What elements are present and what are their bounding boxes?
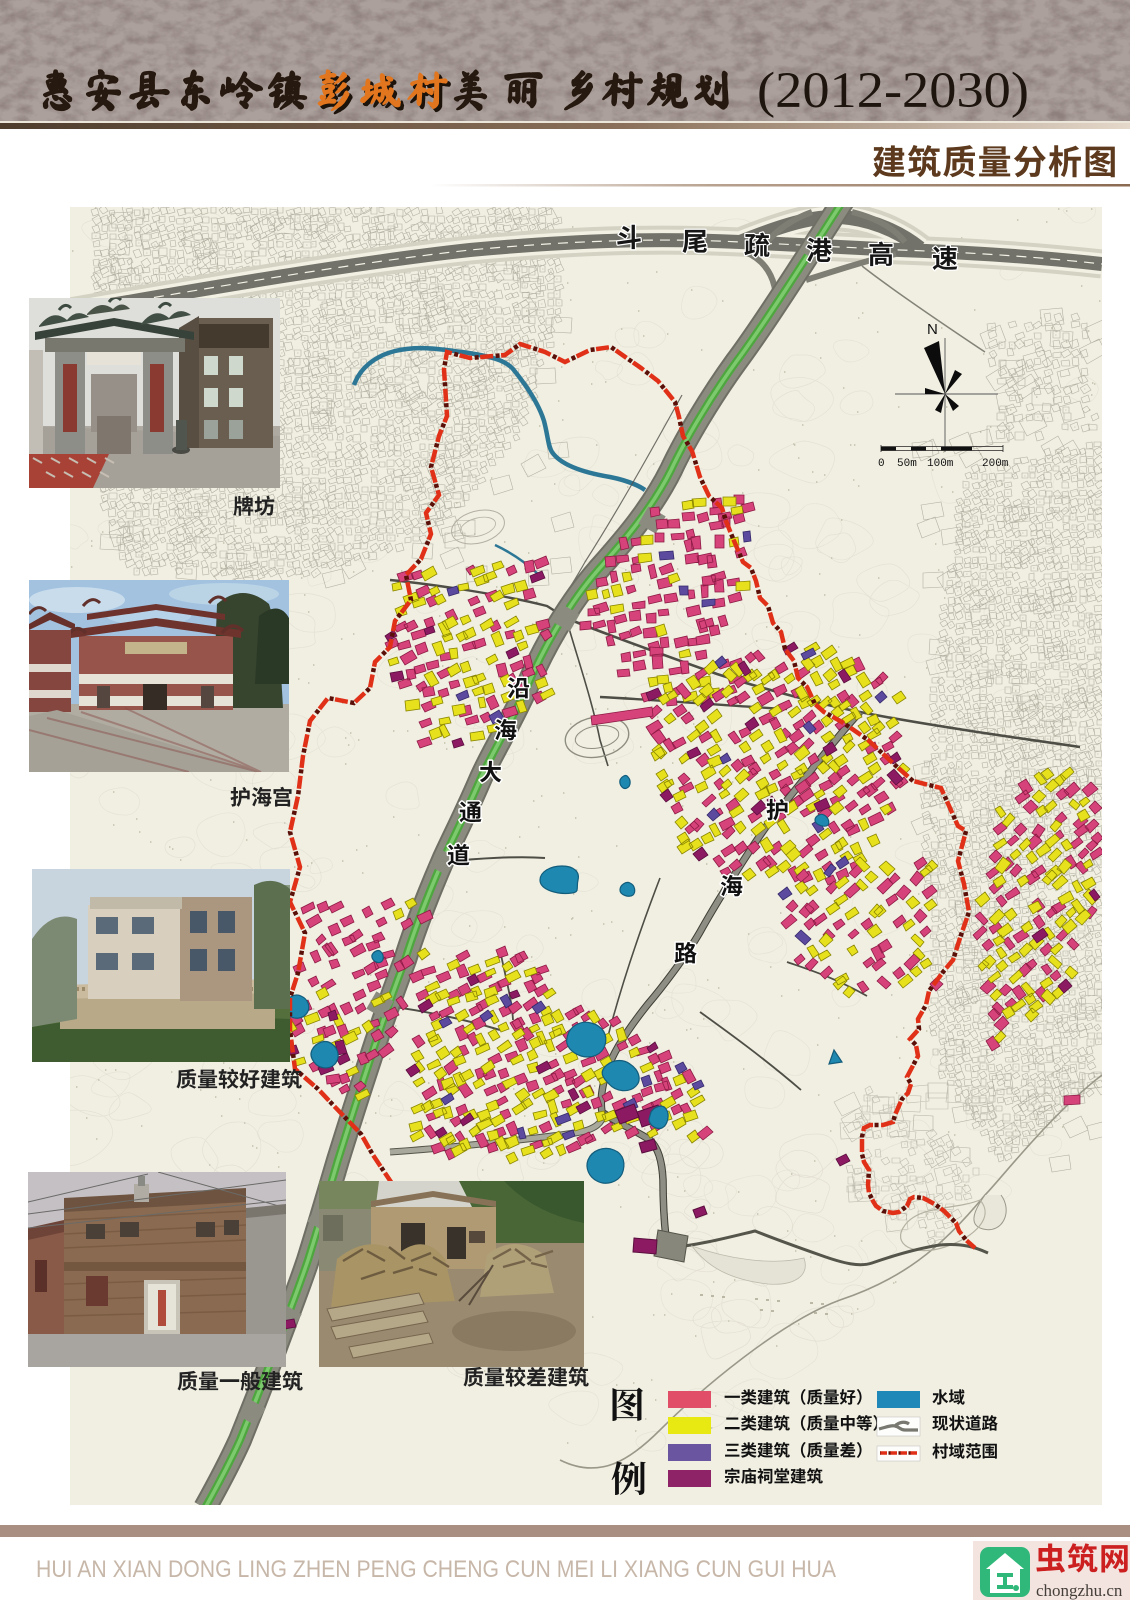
svg-text:chongzhu.cn: chongzhu.cn xyxy=(1036,1581,1123,1600)
svg-text:0: 0 xyxy=(878,458,885,470)
svg-text:HUI AN XIAN DONG LING ZHEN PEN: HUI AN XIAN DONG LING ZHEN PENG CHENG CU… xyxy=(36,1556,836,1583)
svg-text:(2012-2030): (2012-2030) xyxy=(757,63,1029,119)
svg-text:N: N xyxy=(927,321,938,338)
svg-text:50m: 50m xyxy=(897,458,917,470)
svg-text:200m: 200m xyxy=(982,458,1009,470)
svg-text:100m: 100m xyxy=(927,458,954,470)
